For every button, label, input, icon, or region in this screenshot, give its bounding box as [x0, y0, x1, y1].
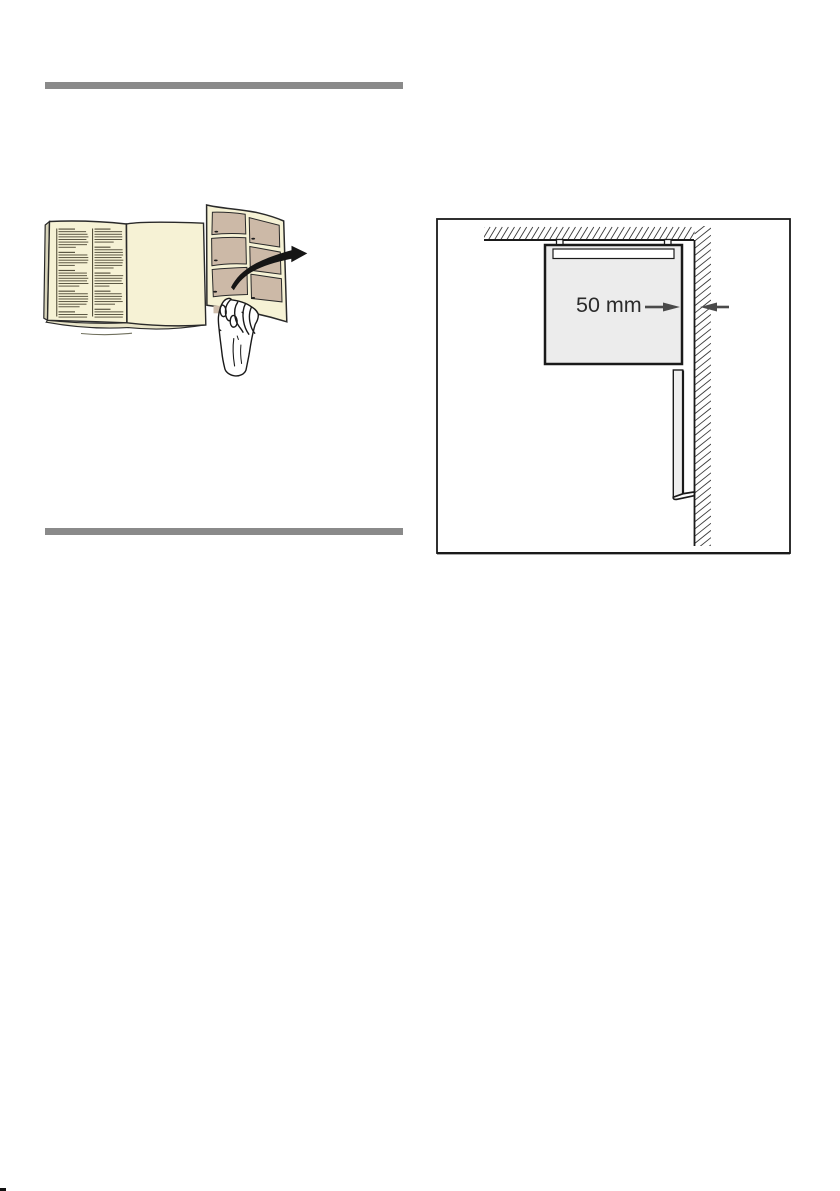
svg-text:50 mm: 50 mm: [576, 293, 642, 317]
